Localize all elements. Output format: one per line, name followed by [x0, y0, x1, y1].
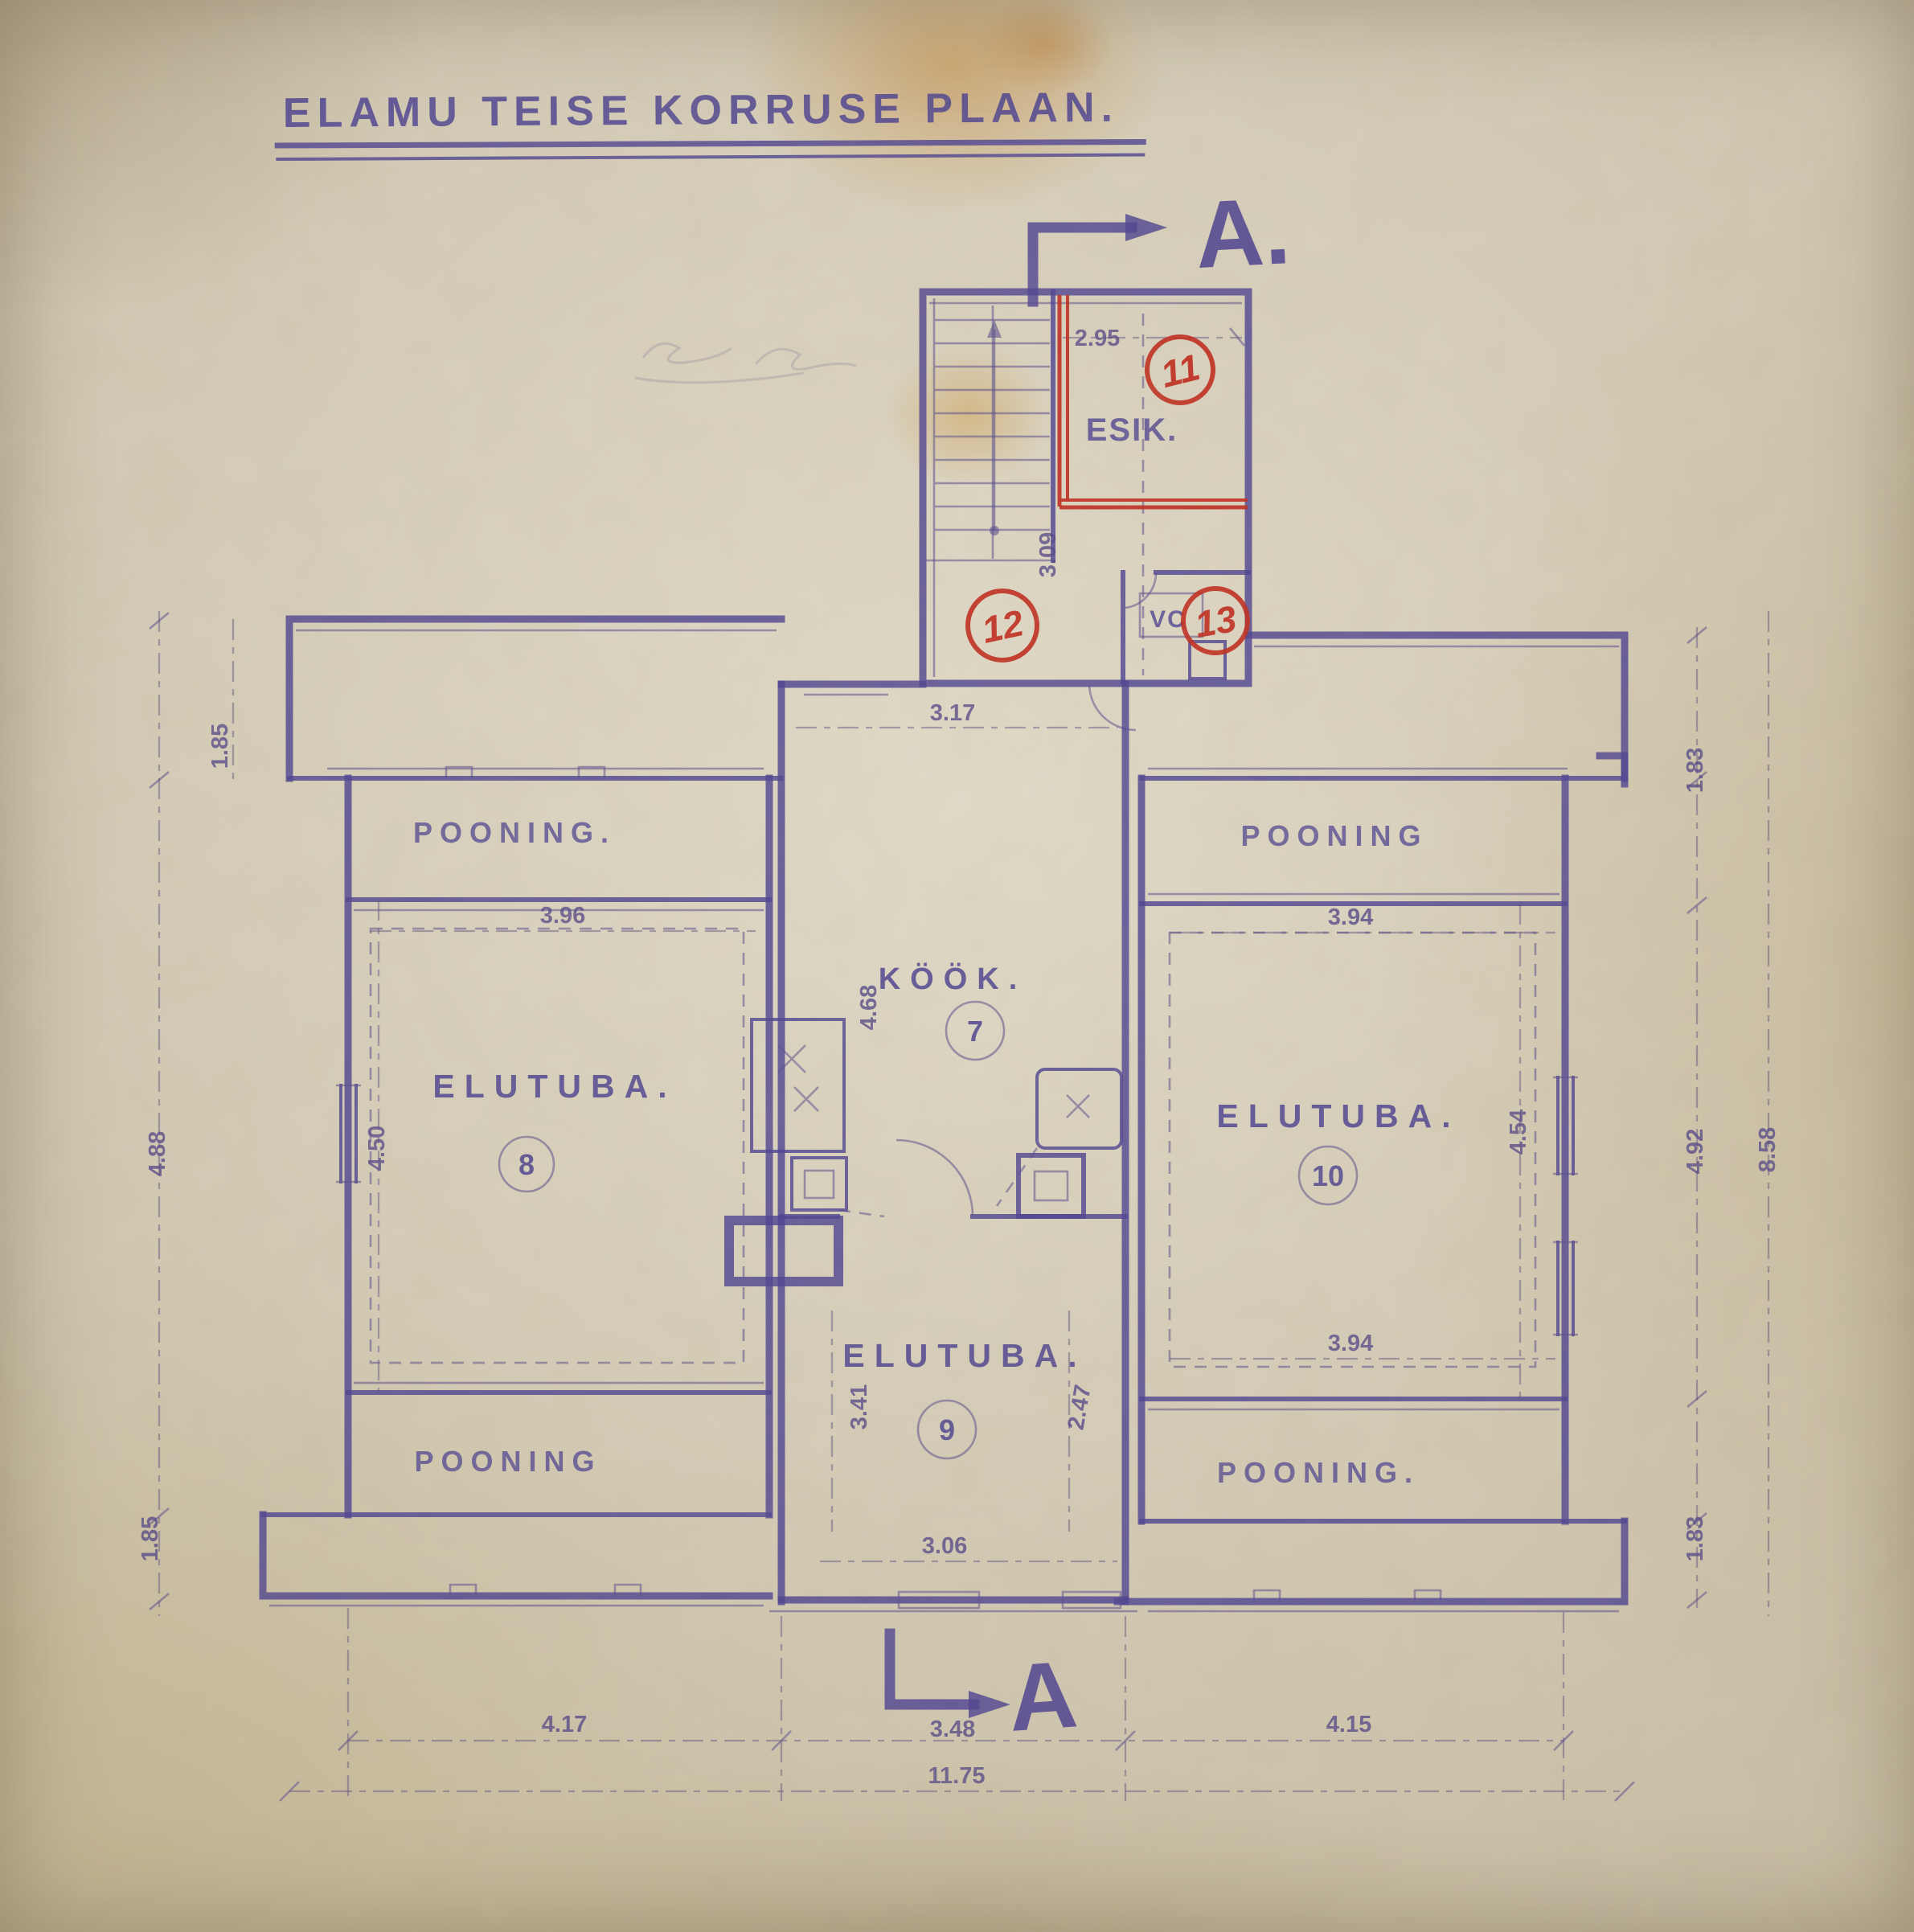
scan-edge-vignette: [0, 0, 1914, 1932]
scanned-floor-plan: ELAMU TEISE KORRUSE PLAAN. A.: [0, 0, 1914, 1932]
